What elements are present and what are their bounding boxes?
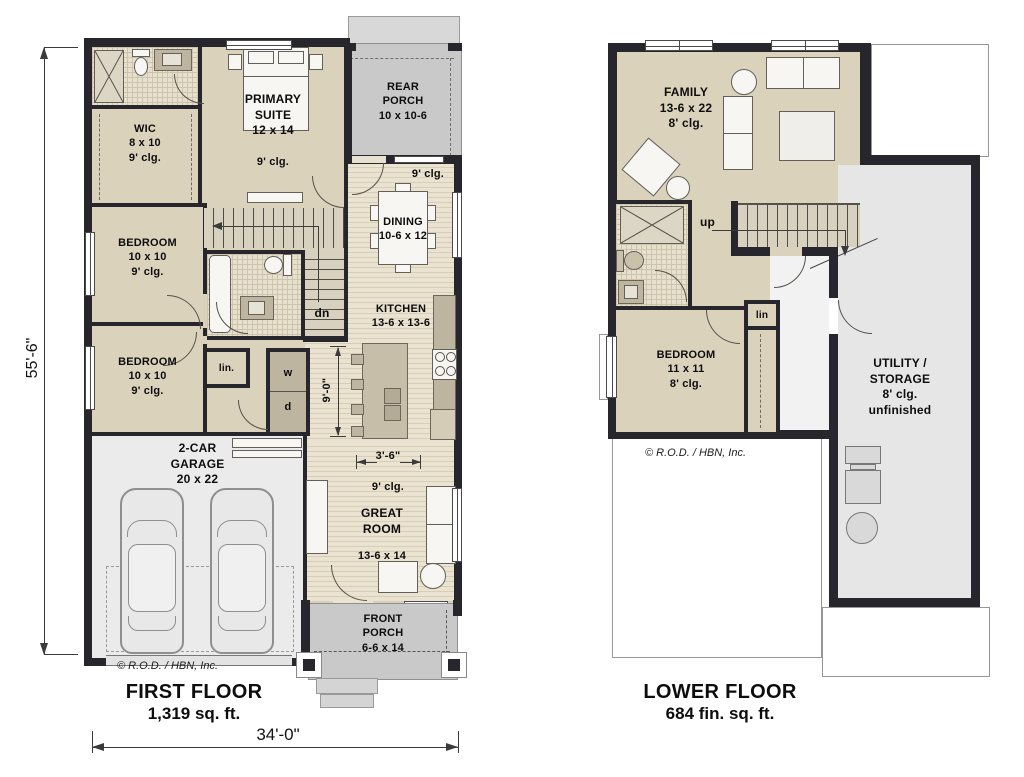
dim-arrow [335, 427, 341, 436]
shower-icon [94, 50, 124, 103]
lower-wall-utility-bottom [829, 598, 980, 607]
porch-corner-tick [448, 43, 462, 51]
label-up: up [700, 215, 746, 231]
sink-icon [162, 53, 182, 66]
footprint-outline [612, 438, 822, 658]
round-table-icon [666, 176, 690, 200]
toilet-tank-icon [283, 254, 292, 276]
dim-arrow [335, 347, 341, 356]
first-floor-area: 1,319 sq. ft. [104, 704, 284, 724]
square-table-icon [779, 111, 835, 161]
laundry-divider [270, 391, 306, 392]
stairs-down-upper [204, 208, 345, 248]
dim-height-line [44, 48, 45, 654]
toilet-bowl-icon [624, 251, 644, 270]
lower-wall-utility-top [860, 155, 980, 165]
dim-width-line [92, 747, 458, 748]
closet-rod [760, 334, 761, 428]
stair-arrow-line [318, 226, 319, 302]
lower-wall-stairs [802, 247, 838, 256]
label-kitchen: KITCHEN13-6 x 13-6 [345, 302, 457, 331]
island-sink-icon [384, 388, 401, 404]
fireplace-icon [306, 480, 328, 554]
stair-wall-end [303, 336, 348, 342]
window [226, 40, 292, 50]
label-front-porch: FRONTPORCH6-6 x 14 [308, 612, 458, 655]
car-windshield [127, 520, 177, 537]
label-washer: w [266, 366, 310, 380]
armchair-icon [378, 561, 418, 593]
sink-icon [248, 301, 265, 315]
toilet-bowl-icon [264, 256, 283, 274]
stair-arrow-line [222, 226, 318, 227]
label-island-depth: 9'-0" [320, 360, 334, 420]
label-lower-linen: lin [744, 309, 780, 322]
dim-ext-right [458, 731, 459, 753]
car-icon [120, 488, 184, 654]
dim-arrow [40, 47, 48, 59]
nightstand-icon [228, 54, 242, 70]
shower-icon [620, 206, 684, 244]
label-garage: 2-CARGARAGE20 x 22 [88, 441, 307, 488]
round-table-icon [420, 563, 446, 589]
label-family: FAMILY13-6 x 228' clg. [616, 85, 756, 132]
label-linen: lin. [203, 362, 250, 375]
label-great-room: GREATROOM [340, 506, 424, 537]
dim-arrow [446, 743, 458, 751]
footprint-outline [822, 607, 990, 677]
burner-icon [446, 366, 456, 376]
unexcavated-outline [871, 44, 989, 157]
label-great-size: 13-6 x 14 [340, 549, 424, 563]
blanket-line [243, 76, 309, 77]
lower-wall-stairs [731, 247, 770, 256]
car-windshield [217, 520, 267, 537]
sink-icon [624, 285, 638, 299]
bedroom1-door-opening [203, 294, 207, 328]
pillow-icon [248, 51, 274, 64]
label-lower-bedroom: BEDROOM11 x 118' clg. [612, 348, 760, 391]
island-sink-icon [384, 405, 401, 421]
car-roof [128, 544, 176, 612]
stool-icon [351, 426, 364, 437]
car-roof [218, 544, 266, 612]
toilet-tank-icon [616, 250, 624, 272]
label-bedroom1: BEDROOM10 x 109' clg. [88, 236, 207, 279]
water-tank-icon [846, 512, 878, 544]
furnace-icon [845, 470, 881, 504]
label-dryer: d [266, 400, 310, 414]
car-icon [210, 488, 274, 654]
dim-line [338, 348, 339, 435]
label-primary-clg: 9' clg. [198, 155, 348, 169]
porch-post [296, 652, 322, 678]
copyright-lower-floor: © R.O.D. / HBN, Inc. [645, 447, 746, 459]
floor-plan-canvas: WIC8 x 109' clg. PRIMARYSUITE12 x 14 9' … [0, 0, 1024, 777]
sofa-icon [766, 57, 840, 89]
copyright-first-floor: © R.O.D. / HBN, Inc. [117, 660, 218, 672]
rear-door-opening [352, 156, 386, 163]
lower-floor-area: 684 fin. sq. ft. [630, 704, 810, 724]
dim-tick [330, 436, 346, 437]
label-utility: UTILITY /STORAGE8' clg.unfinished [840, 356, 960, 418]
lower-wall-utility-left [829, 334, 838, 607]
car-rear-window [218, 616, 266, 631]
lower-wall-family-right [860, 43, 871, 165]
burner-icon [435, 352, 445, 362]
stair-arrow-head [841, 246, 849, 256]
first-floor-title: FIRST FLOOR [104, 681, 284, 704]
window [452, 488, 462, 562]
stairs-down-lower [305, 250, 345, 338]
window [394, 156, 444, 163]
fridge-icon [430, 409, 456, 440]
porch-post [441, 652, 467, 678]
hall-opening [203, 336, 207, 344]
chair-icon [395, 183, 411, 192]
label-dn: dn [306, 306, 338, 322]
label-dining-clg: 9' clg. [396, 167, 460, 181]
dim-arrow [40, 643, 48, 655]
window [771, 40, 839, 51]
toilet-bowl-icon [134, 57, 148, 76]
stool-icon [351, 379, 364, 390]
label-bedroom2: BEDROOM10 x 109' clg. [88, 355, 207, 398]
lower-wall-utility-right [971, 155, 980, 607]
label-great-dim: 3'-6" [352, 449, 424, 463]
label-wic: WIC8 x 109' clg. [88, 122, 202, 165]
toilet-tank-icon [132, 49, 150, 57]
dim-ext-top [44, 47, 78, 48]
burner-icon [435, 366, 445, 376]
dim-height-text: 55'-6" [24, 328, 42, 388]
dim-arrow [92, 743, 104, 751]
chair-icon [395, 264, 411, 273]
label-great-clg: 9' clg. [352, 480, 424, 494]
dim-ext-bottom [44, 654, 78, 655]
lower-floor-title: LOWER FLOOR [630, 681, 810, 704]
car-rear-window [128, 616, 176, 631]
stool-icon [351, 354, 364, 365]
dim-width-text: 34'-0" [228, 725, 328, 745]
label-primary-suite: PRIMARYSUITE12 x 14 [198, 92, 348, 139]
room-laundry-closet [266, 348, 310, 436]
label-dining: DINING10-6 x 12 [344, 215, 462, 244]
porch-step [320, 694, 374, 708]
label-rear-porch: REARPORCH10 x 10-6 [344, 80, 462, 123]
rear-porch-roofline [350, 58, 454, 59]
pillow-icon [278, 51, 304, 64]
water-heater-icon [845, 446, 881, 464]
nightstand-icon [309, 54, 323, 70]
porch-step [316, 678, 378, 694]
burner-icon [446, 352, 456, 362]
dresser-icon [247, 192, 303, 203]
window [645, 40, 713, 51]
stool-icon [351, 404, 364, 415]
stairs-up [738, 203, 860, 247]
stair-arrow-head [212, 222, 222, 230]
